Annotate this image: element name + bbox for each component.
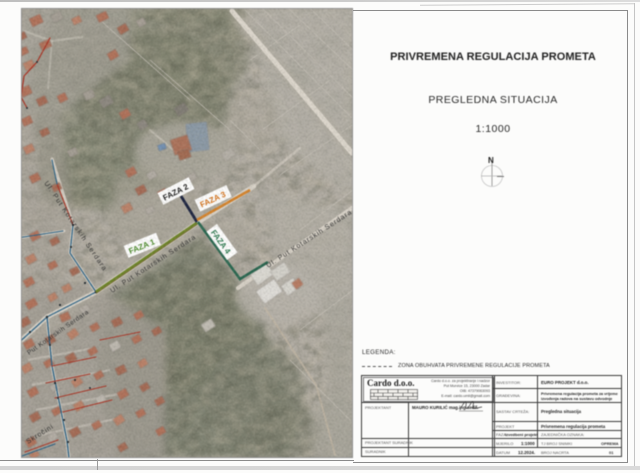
- svg-text:N: N: [488, 156, 494, 165]
